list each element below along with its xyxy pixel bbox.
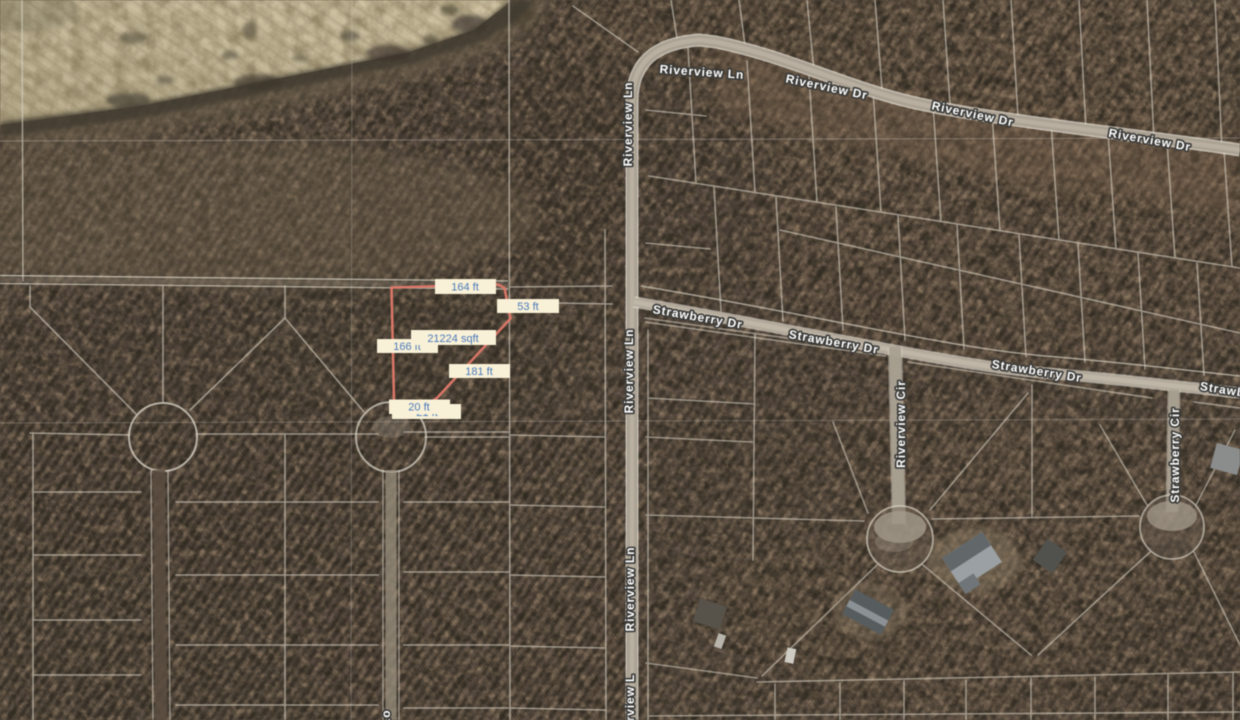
svg-text:Riverview Cir: Riverview Cir: [894, 380, 908, 468]
svg-text:Riverview Ln: Riverview Ln: [622, 329, 636, 414]
svg-text:53 ft: 53 ft: [517, 301, 538, 313]
svg-text:Lo: Lo: [379, 710, 393, 720]
svg-text:21224 sqft: 21224 sqft: [427, 333, 478, 345]
svg-text:20 ft: 20 ft: [408, 402, 429, 414]
svg-text:Riverview Ln: Riverview Ln: [623, 547, 637, 632]
svg-text:164 ft: 164 ft: [451, 282, 479, 294]
svg-text:181 ft: 181 ft: [465, 366, 493, 378]
svg-text:Strawberry Cir: Strawberry Cir: [1168, 407, 1182, 502]
svg-text:Riverview L: Riverview L: [623, 674, 637, 720]
svg-text:Riverview Ln: Riverview Ln: [621, 82, 635, 167]
